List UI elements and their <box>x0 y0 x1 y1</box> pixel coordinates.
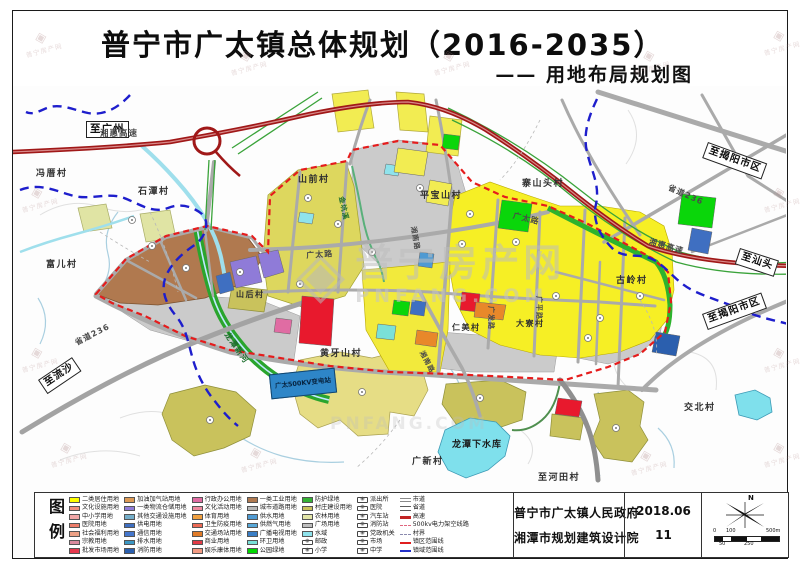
sheet-number: 11 <box>625 528 702 542</box>
legend-item: 市道 <box>400 496 469 504</box>
legend-item: 汽车站 <box>357 513 395 521</box>
legend-item: 排水用地 <box>124 539 187 547</box>
legend-label: 社会福利用地 <box>82 531 119 537</box>
legend-label: 行政办公用地 <box>205 497 242 503</box>
date-block: 2018.06 11 <box>624 493 702 557</box>
legend-item: 供燃气用地 <box>247 522 297 530</box>
map-label: 广平路 <box>535 296 542 320</box>
legend-item: 村庄建设用地 <box>302 505 352 513</box>
legend-symbol-swatch <box>192 514 203 520</box>
legend-item: 一类物流仓储用地 <box>124 505 187 513</box>
legend-item: 通信用地 <box>124 530 187 538</box>
legend-label: 小学 <box>315 548 327 554</box>
legend-item: 环卫用地 <box>247 539 297 547</box>
map-label: 交北村 <box>684 404 716 413</box>
legend-item: 文化活动用地 <box>192 505 242 513</box>
legend-symbol-road-minor <box>400 498 411 503</box>
scale-tick: 50 <box>719 542 725 547</box>
legend-symbol-swatch <box>247 548 258 554</box>
legend-symbol-power-line <box>400 525 411 526</box>
legend-label: 二类居住用地 <box>82 497 119 503</box>
legend-symbol-icon <box>357 523 368 529</box>
legend-label: 水域 <box>315 531 327 537</box>
legend-columns: 二类居住用地文化设施用地中小学用地医院用地社会福利用地宗教用地批发市场用地加油加… <box>69 495 542 556</box>
residential-zone-mid <box>362 262 450 372</box>
legend-label: 供电用地 <box>137 522 162 528</box>
legend-symbol-swatch <box>192 523 203 529</box>
legend-symbol-swatch <box>192 531 203 537</box>
legend-symbol-swatch <box>247 540 258 546</box>
legend-item: 中小学用地 <box>69 513 119 521</box>
legend-item: 高速 <box>400 513 469 521</box>
legend-column: 加油加气站用地一类物流仓储用地其他交通设施用地供电用地通信用地排水用地消防用地 <box>124 495 187 556</box>
legend-label: 加油加气站用地 <box>137 497 180 503</box>
plan-sheet: ◈ 普宁房产网 PNFANG.COM PNFANG.COM 广太500KV变电站… <box>0 0 800 566</box>
map-label: 大寮村 <box>516 320 545 328</box>
map-label: 山后村 <box>236 291 265 299</box>
legend-label: 医院用地 <box>82 522 107 528</box>
legend-label: 交通场站用地 <box>205 531 242 537</box>
compass-block: N 0 100 500m 50 250 <box>701 493 789 557</box>
map-label: 至河田村 <box>538 474 580 483</box>
legend-column: 防护绿地村庄建设用地农林用地广场用地水域邮政小学 <box>302 495 352 556</box>
legend-symbol-swatch <box>69 531 80 537</box>
scale-tick: 100 <box>726 529 736 534</box>
map-label: 广发路 <box>487 306 494 330</box>
legend-label: 市道 <box>413 497 425 503</box>
pond-northeast <box>735 390 772 420</box>
legend-symbol-icon <box>357 548 368 554</box>
legend-label: 一类工业用地 <box>260 497 297 503</box>
legend-item: 文化设施用地 <box>69 505 119 513</box>
legend-label: 其他交通设施用地 <box>137 514 187 520</box>
legend-item: 批发市场用地 <box>69 547 119 555</box>
legend-item: 党政机关 <box>357 530 395 538</box>
legend-item: 村界 <box>400 530 469 538</box>
legend-symbol-swatch <box>124 497 135 503</box>
legend-item: 城市道路用地 <box>247 505 297 513</box>
compass-icon <box>724 500 766 530</box>
legend-item: 商业用地 <box>192 539 242 547</box>
legend-column: 二类居住用地文化设施用地中小学用地医院用地社会福利用地宗教用地批发市场用地 <box>69 495 119 556</box>
legend-item: 娱乐康体用地 <box>192 547 242 555</box>
legend-label: 供燃气用地 <box>260 522 291 528</box>
legend-symbol-swatch <box>69 523 80 529</box>
legend-label: 中学 <box>370 548 382 554</box>
legend-label: 省道 <box>413 505 425 511</box>
legend-label: 城市道路用地 <box>260 505 297 511</box>
legend-label: 高速 <box>413 514 425 520</box>
legend-symbol-swatch <box>192 548 203 554</box>
legend-symbol-swatch <box>69 506 80 512</box>
map-label: 仁美村 <box>452 324 481 332</box>
page-subtitle: —— 用地布局规划图 <box>495 60 693 87</box>
legend-symbol-icon <box>357 514 368 520</box>
map-label: 富儿村 <box>46 261 78 270</box>
scale-tick: 250 <box>744 542 754 547</box>
legend-symbol-swatch <box>69 514 80 520</box>
map-label: 湘惠高速 <box>100 130 138 139</box>
map-label: 龙潭下水库 <box>452 441 502 450</box>
legend-label: 文化活动用地 <box>205 505 242 511</box>
legend-item: 一类工业用地 <box>247 496 297 504</box>
legend-label: 医院 <box>370 505 382 511</box>
legend-symbol-road-prov <box>400 506 411 511</box>
legend-item: 镇区范围线 <box>400 539 469 547</box>
legend-symbol-swatch <box>124 523 135 529</box>
legend-symbol-swatch <box>192 497 203 503</box>
plan-date: 2018.06 <box>625 504 702 518</box>
legend-item: 消防用地 <box>124 547 187 555</box>
legend-symbol-swatch <box>302 497 313 503</box>
legend-item: 交通场站用地 <box>192 530 242 538</box>
legend-symbol-swatch <box>124 540 135 546</box>
legend-symbol-icon <box>357 497 368 503</box>
legend-label: 广场用地 <box>315 522 340 528</box>
legend-label: 消防用地 <box>137 548 162 554</box>
legend-label: 一类物流仓储用地 <box>137 505 187 511</box>
legend-label: 卫生防疫用地 <box>205 522 242 528</box>
legend-label: 公园绿地 <box>260 548 285 554</box>
legend-item: 其他交通设施用地 <box>124 513 187 521</box>
legend-item: 医院 <box>357 505 395 513</box>
legend-symbol-road-hwy <box>400 516 411 519</box>
legend-item: 小学 <box>302 547 352 555</box>
legend-label: 党政机关 <box>370 531 395 537</box>
legend-item: 二类居住用地 <box>69 496 119 504</box>
legend-label: 邮政 <box>315 539 327 545</box>
scale-tick: 0 <box>713 529 716 534</box>
legend-symbol-swatch <box>69 548 80 554</box>
legend-label: 消防站 <box>370 522 389 528</box>
legend-band: 图例 二类居住用地文化设施用地中小学用地医院用地社会福利用地宗教用地批发市场用地… <box>34 492 789 558</box>
legend-symbol-swatch <box>247 506 258 512</box>
legend-label: 商业用地 <box>205 539 230 545</box>
page-title: 普宁市广太镇总体规划（2016-2035） <box>101 22 664 64</box>
scale-tick: 500m <box>766 529 780 534</box>
legend-symbol-swatch <box>247 497 258 503</box>
legend-item: 派出所 <box>357 496 395 504</box>
legend-item: 体育用地 <box>192 513 242 521</box>
legend-symbol-swatch <box>247 523 258 529</box>
legend-symbol-swatch <box>69 540 80 546</box>
legend-item: 供电用地 <box>124 522 187 530</box>
legend-label: 镇区范围线 <box>413 539 444 545</box>
map-label: 广新村 <box>412 458 444 467</box>
legend-symbol-swatch <box>247 514 258 520</box>
legend-symbol-icon <box>357 506 368 512</box>
legend-item: 消防站 <box>357 522 395 530</box>
legend-symbol-swatch <box>124 514 135 520</box>
legend-item: 医院用地 <box>69 522 119 530</box>
legend-heading: 图例 <box>43 498 67 548</box>
legend-label: 村庄建设用地 <box>315 505 352 511</box>
map-label: 石潭村 <box>138 188 170 197</box>
legend-symbol-icon <box>302 540 313 546</box>
legend-label: 通信用地 <box>137 531 162 537</box>
legend-item: 市场 <box>357 539 395 547</box>
legend-symbol-swatch <box>124 506 135 512</box>
legend-symbol-icon <box>357 531 368 537</box>
legend-label: 娱乐康体用地 <box>205 548 242 554</box>
map-label: 平宝山村 <box>420 192 462 201</box>
legend-item: 供水用地 <box>247 513 297 521</box>
legend-item: 宗教用地 <box>69 539 119 547</box>
legend-symbol-swatch <box>302 531 313 537</box>
agency-name-1: 普宁市广太镇人民政府 <box>514 504 625 521</box>
title-block: 普宁市广太镇总体规划（2016-2035） —— 用地布局规划图 <box>13 12 785 86</box>
legend-label: 文化设施用地 <box>82 505 119 511</box>
legend-label: 供水用地 <box>260 514 285 520</box>
legend-item: 行政办公用地 <box>192 496 242 504</box>
legend-item: 邮政 <box>302 539 352 547</box>
interchange-loop <box>194 128 220 154</box>
legend-item: 公园绿地 <box>247 547 297 555</box>
legend-label: 中小学用地 <box>82 514 113 520</box>
residential-zone-east <box>448 182 674 358</box>
legend-label: 环卫用地 <box>260 539 285 545</box>
legend-label: 广播电视用地 <box>260 531 297 537</box>
legend-item: 镇域范围线 <box>400 547 469 555</box>
legend-symbol-swatch <box>247 531 258 537</box>
legend-symbol-swatch <box>124 548 135 554</box>
legend-label: 批发市场用地 <box>82 548 119 554</box>
legend-symbol-swatch <box>192 506 203 512</box>
map-canvas <box>13 88 786 491</box>
legend-label: 镇域范围线 <box>413 548 444 554</box>
legend-label: 汽车站 <box>370 514 389 520</box>
map-label: 山前村 <box>298 176 330 185</box>
legend-symbol-swatch <box>302 523 313 529</box>
legend-column: 行政办公用地文化活动用地体育用地卫生防疫用地交通场站用地商业用地娱乐康体用地 <box>192 495 242 556</box>
legend-item: 社会福利用地 <box>69 530 119 538</box>
legend-symbol-swatch <box>124 531 135 537</box>
legend-item: 广场用地 <box>302 522 352 530</box>
legend-label: 市场 <box>370 539 382 545</box>
legend-symbol-swatch <box>302 514 313 520</box>
legend-item: 中学 <box>357 547 395 555</box>
legend-label: 村界 <box>413 531 425 537</box>
legend-column: 一类工业用地城市道路用地供水用地供燃气用地广播电视用地环卫用地公园绿地 <box>247 495 297 556</box>
legend-label: 体育用地 <box>205 514 230 520</box>
legend-label: 排水用地 <box>137 539 162 545</box>
legend-item: 加油加气站用地 <box>124 496 187 504</box>
legend-item: 农林用地 <box>302 513 352 521</box>
title-block-agency: 普宁市广太镇人民政府 湘潭市规划建筑设计院 <box>513 493 625 557</box>
map-label: 冯厝村 <box>36 170 68 179</box>
legend-label: 农林用地 <box>315 514 340 520</box>
agency-name-2: 湘潭市规划建筑设计院 <box>514 529 625 546</box>
legend-symbol-town-line <box>400 542 411 544</box>
legend-item: 500kv电力架空线路 <box>400 522 469 530</box>
legend-symbol-icon <box>357 540 368 546</box>
legend-item: 水域 <box>302 530 352 538</box>
legend-symbol-swatch <box>69 497 80 503</box>
legend-column: 派出所医院汽车站消防站党政机关市场中学 <box>357 495 395 556</box>
legend-item: 卫生防疫用地 <box>192 522 242 530</box>
legend-symbol-swatch <box>302 506 313 512</box>
legend-label: 派出所 <box>370 497 389 503</box>
legend-item: 防护绿地 <box>302 496 352 504</box>
legend-symbol-icon <box>302 548 313 554</box>
legend-column: 市道省道高速500kv电力架空线路村界镇区范围线镇域范围线 <box>400 495 469 556</box>
legend-item: 广播电视用地 <box>247 530 297 538</box>
legend-label: 宗教用地 <box>82 539 107 545</box>
legend-item: 省道 <box>400 505 469 513</box>
legend-label: 500kv电力架空线路 <box>413 522 469 528</box>
map-label: 黄牙山村 <box>320 350 362 359</box>
legend-symbol-domain-line <box>400 550 411 552</box>
legend-symbol-swatch <box>192 540 203 546</box>
legend-label: 防护绿地 <box>315 497 340 503</box>
map-label: 古岭村 <box>616 277 648 286</box>
legend-symbol-village-border <box>400 534 411 535</box>
map-label: 寨山头村 <box>522 180 564 189</box>
